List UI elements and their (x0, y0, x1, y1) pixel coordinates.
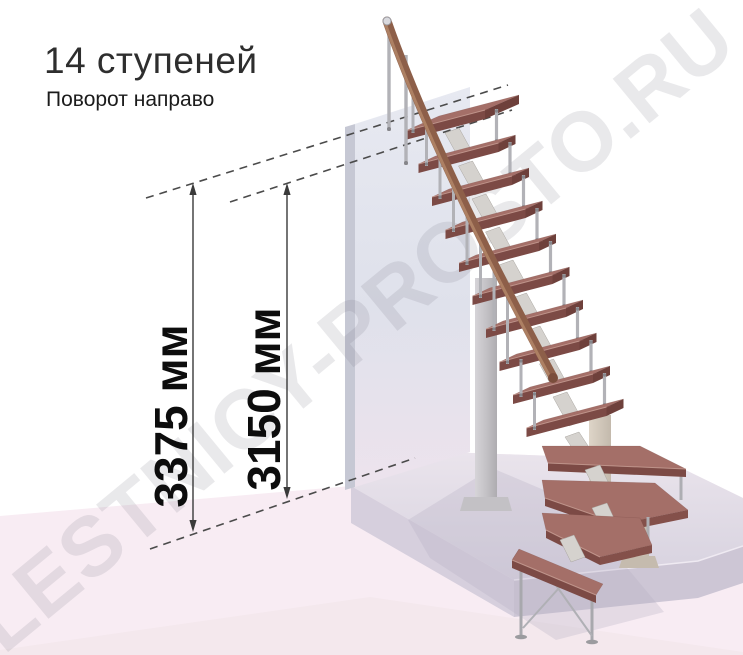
baluster-collar (465, 261, 468, 264)
newel-collar (404, 161, 408, 165)
dimension-height-to-top-step: 3150 мм (238, 183, 291, 499)
dimension-label-3150: 3150 мм (238, 307, 290, 490)
connector-collar (495, 109, 498, 112)
baluster-collar (479, 294, 482, 297)
baluster-collar (438, 195, 441, 198)
connector-collar (522, 175, 525, 178)
connector-collar (549, 241, 552, 244)
page-subtitle: Поворот направо (46, 88, 214, 112)
connector-collar (603, 373, 606, 376)
dimension-label-3375: 3375 мм (145, 324, 197, 507)
connector-collar (576, 307, 579, 310)
dimension-overall-height: 3375 мм (145, 183, 197, 532)
handrail-top-cap (383, 17, 391, 25)
baluster-collar (452, 228, 455, 231)
handrail-end-cap (548, 373, 558, 383)
baluster-collar (519, 359, 522, 362)
bottom-step-foot (515, 635, 527, 640)
main-post-base (460, 497, 512, 511)
page-title: 14 ступеней (44, 40, 258, 82)
baluster-collar (533, 392, 536, 395)
connector-collar (589, 340, 592, 343)
newel-collar (387, 127, 391, 131)
connector-collar (562, 274, 565, 277)
baluster-collar (519, 393, 522, 396)
staircase-diagram-page: LESTNICY-PROSTO.RU (0, 0, 743, 655)
connector-collar (508, 142, 511, 145)
bottom-step-foot (586, 640, 598, 645)
baluster-collar (533, 426, 536, 429)
connector-collar (535, 208, 538, 211)
baluster-collar (492, 327, 495, 330)
baluster-collar (506, 360, 509, 363)
baluster-collar (425, 162, 428, 165)
baluster-collar (411, 129, 414, 132)
